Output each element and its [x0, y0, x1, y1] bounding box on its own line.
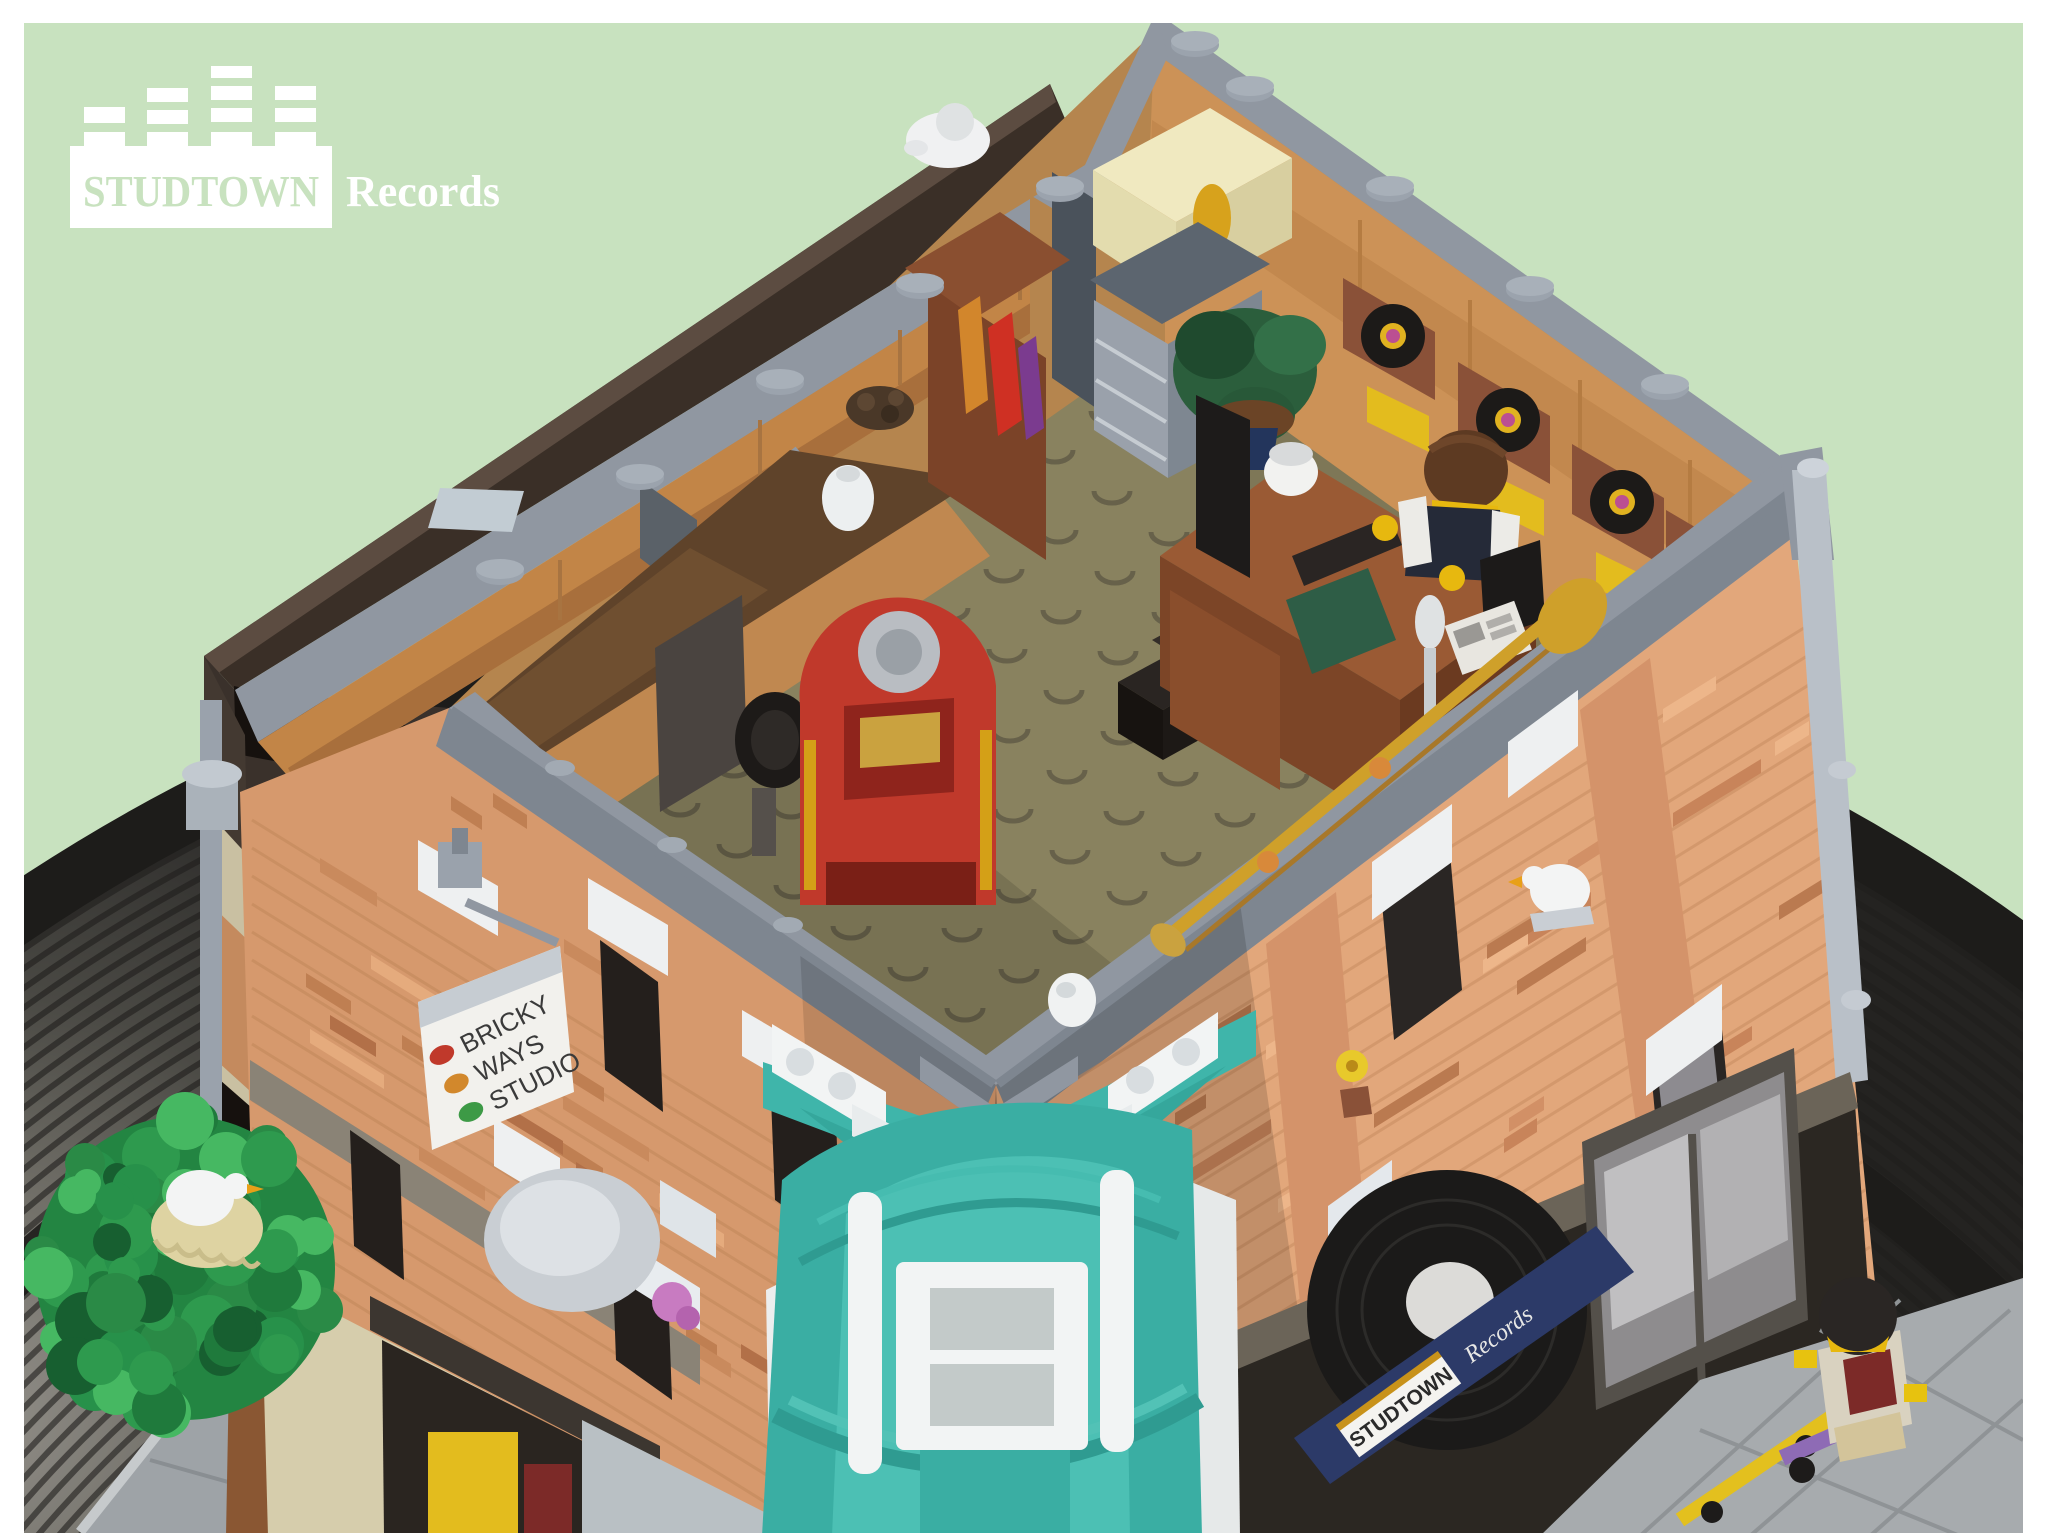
svg-text:Records: Records	[346, 167, 500, 216]
svg-text:STUDTOWN: STUDTOWN	[83, 167, 319, 216]
